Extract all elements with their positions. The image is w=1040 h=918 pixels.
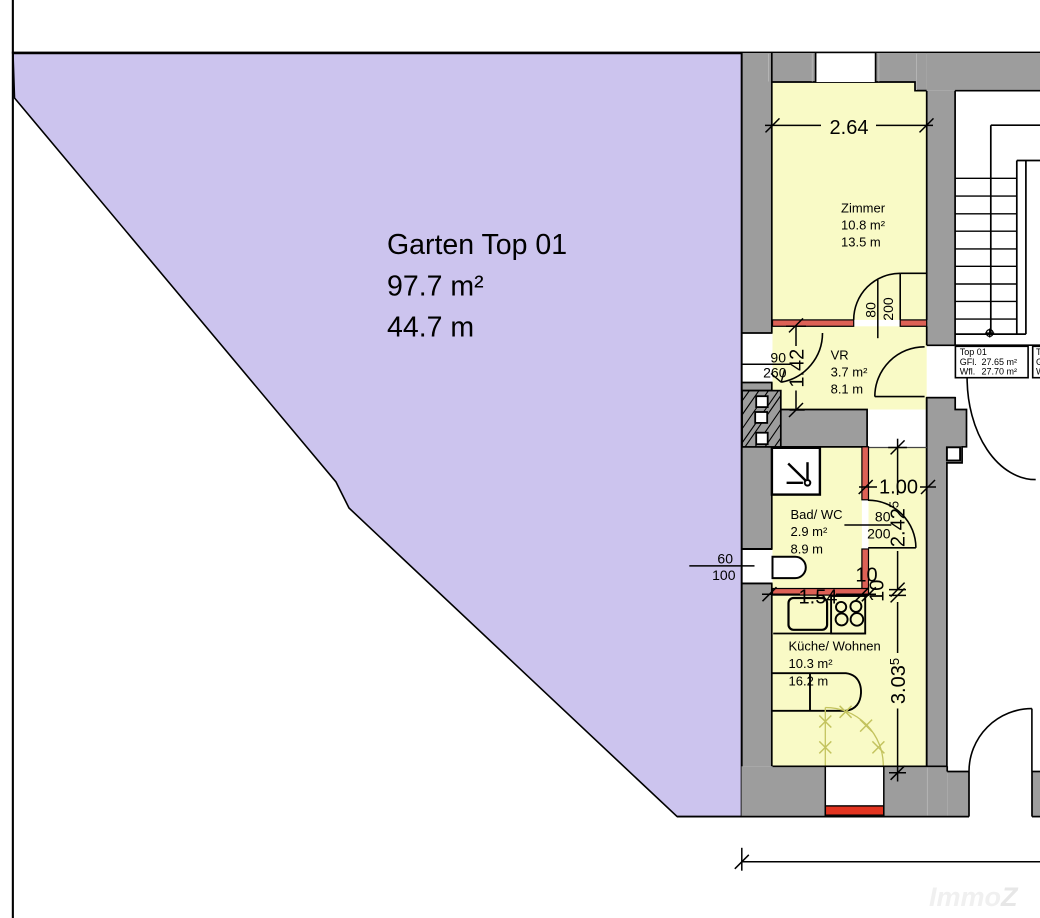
svg-text:27.70 m²: 27.70 m² [982, 367, 1018, 377]
svg-text:260: 260 [763, 365, 787, 381]
svg-text:44.7 m: 44.7 m [387, 312, 474, 344]
svg-text:2.64: 2.64 [830, 117, 869, 139]
svg-text:VR: VR [831, 347, 849, 362]
svg-text:Bad/ WC: Bad/ WC [791, 507, 843, 522]
svg-text:80: 80 [863, 302, 879, 318]
svg-text:27.65 m²: 27.65 m² [982, 357, 1018, 367]
svg-text:2.9 m²: 2.9 m² [791, 524, 829, 539]
svg-text:G: G [1036, 357, 1040, 367]
svg-text:1.00: 1.00 [879, 477, 918, 499]
svg-text:200: 200 [880, 297, 896, 321]
svg-text:Top 01: Top 01 [960, 347, 987, 357]
svg-text:10.3 m²: 10.3 m² [789, 656, 834, 671]
svg-text:1.54: 1.54 [799, 587, 838, 609]
svg-text:13.5 m: 13.5 m [841, 235, 881, 250]
svg-text:10: 10 [867, 580, 889, 602]
svg-text:W: W [1036, 367, 1040, 377]
svg-text:97.7 m²: 97.7 m² [387, 270, 484, 302]
svg-text:3.7 m²: 3.7 m² [831, 364, 869, 379]
svg-text:8.9 m: 8.9 m [791, 542, 824, 557]
svg-text:Küche/ Wohnen: Küche/ Wohnen [789, 639, 881, 654]
svg-text:ImmoZ: ImmoZ [929, 882, 1019, 912]
svg-text:90: 90 [770, 349, 786, 365]
svg-text:16.2 m: 16.2 m [789, 674, 829, 689]
svg-text:Garten Top 01: Garten Top 01 [387, 229, 567, 261]
svg-text:Zimmer: Zimmer [841, 200, 886, 215]
svg-text:Wfl.: Wfl. [960, 367, 976, 377]
svg-text:GFl.: GFl. [960, 357, 977, 367]
svg-text:100: 100 [712, 567, 736, 583]
svg-text:1.42: 1.42 [787, 349, 809, 388]
svg-text:8.1 m: 8.1 m [831, 381, 864, 396]
svg-text:60: 60 [717, 550, 733, 566]
svg-text:To: To [1036, 347, 1040, 357]
svg-text:10.8 m²: 10.8 m² [841, 218, 886, 233]
